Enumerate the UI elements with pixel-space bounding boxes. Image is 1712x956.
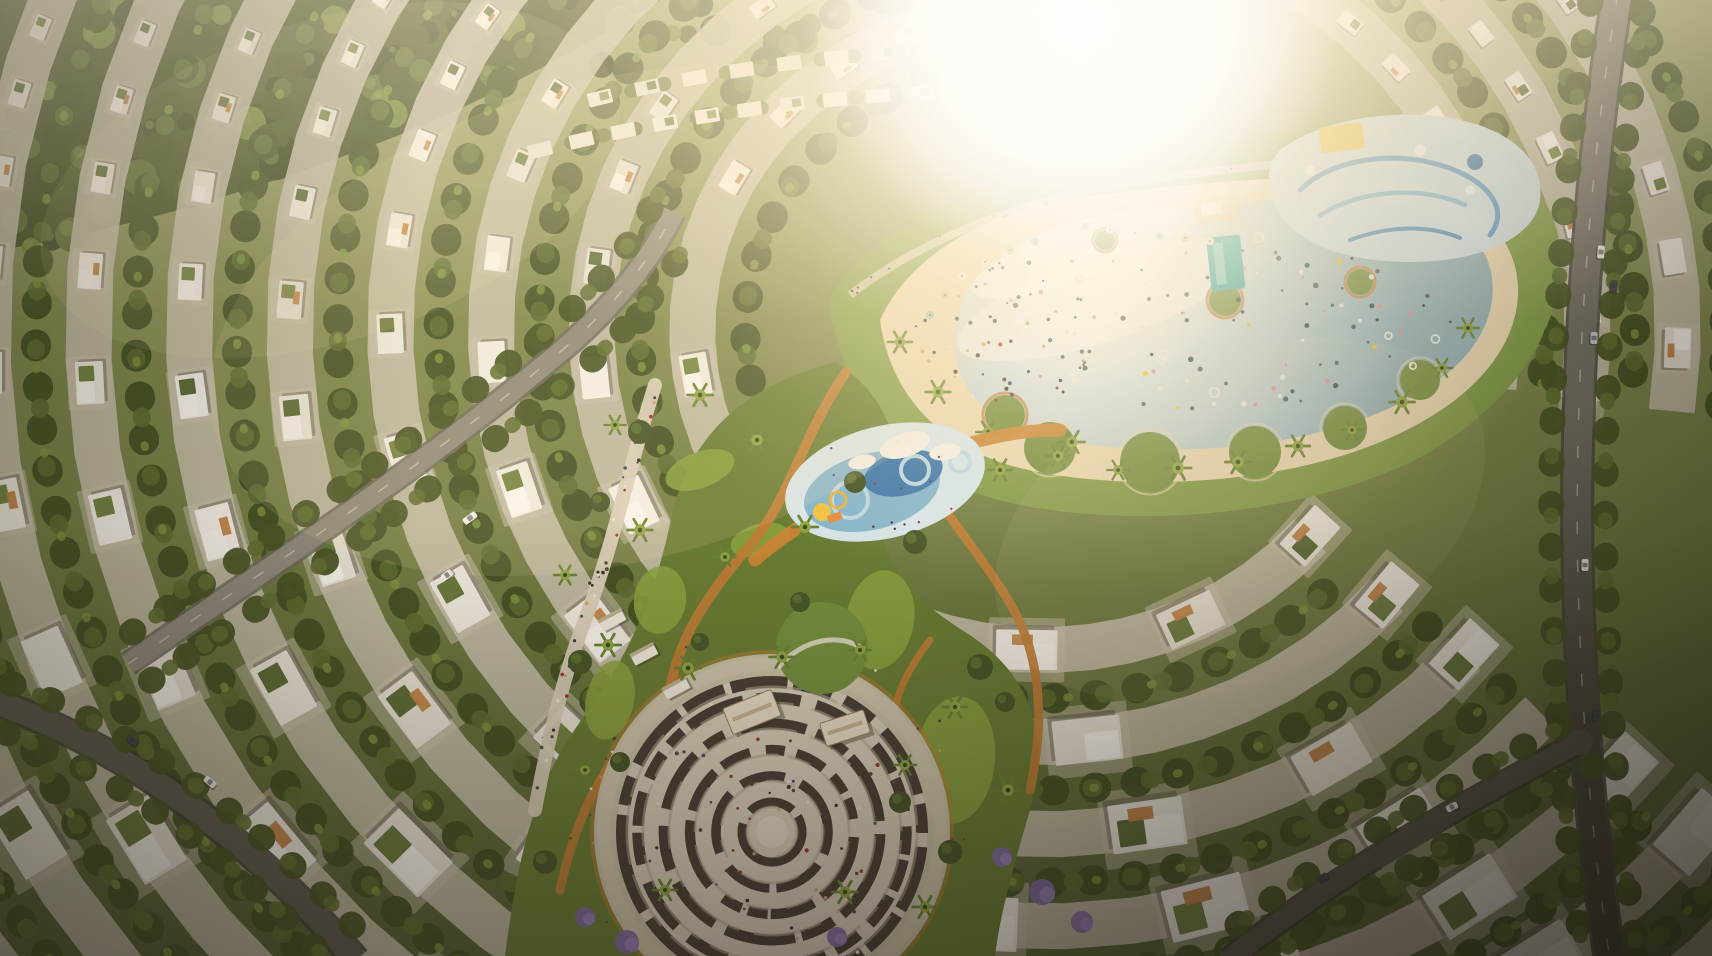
left-edge-shadow	[0, 0, 420, 956]
light-and-shadow-overlays	[0, 0, 1712, 956]
aerial-community-render	[0, 0, 1712, 956]
screenshot-root	[0, 0, 1712, 956]
